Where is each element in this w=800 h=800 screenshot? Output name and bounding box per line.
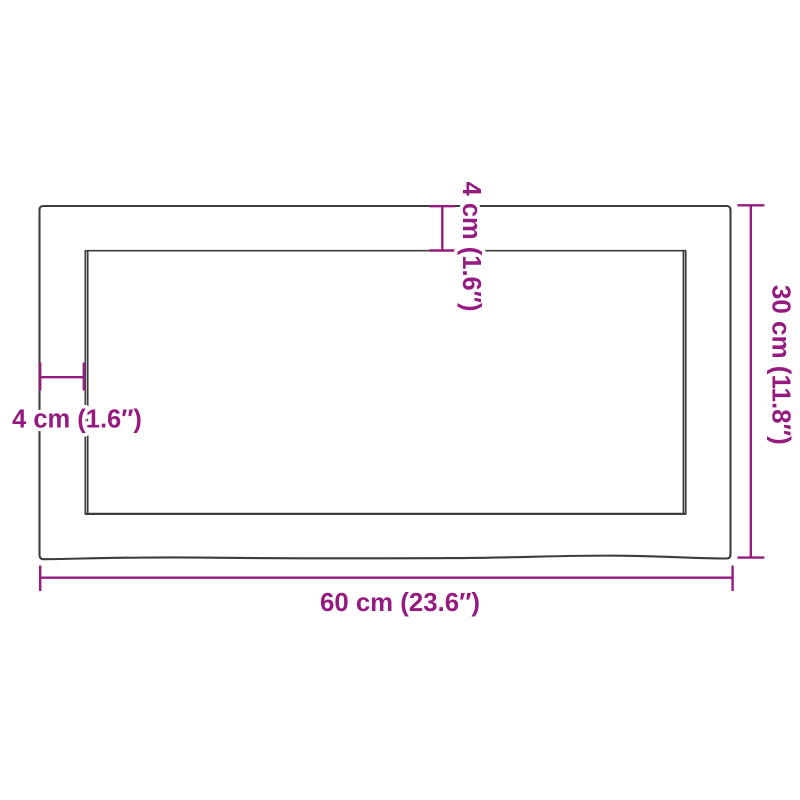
- svg-text:4 cm (1.6″): 4 cm (1.6″): [12, 405, 142, 433]
- svg-text:30 cm (11.8″): 30 cm (11.8″): [767, 285, 797, 445]
- svg-text:4 cm (1.6″): 4 cm (1.6″): [457, 182, 485, 312]
- svg-text:60 cm (23.6″): 60 cm (23.6″): [320, 589, 480, 617]
